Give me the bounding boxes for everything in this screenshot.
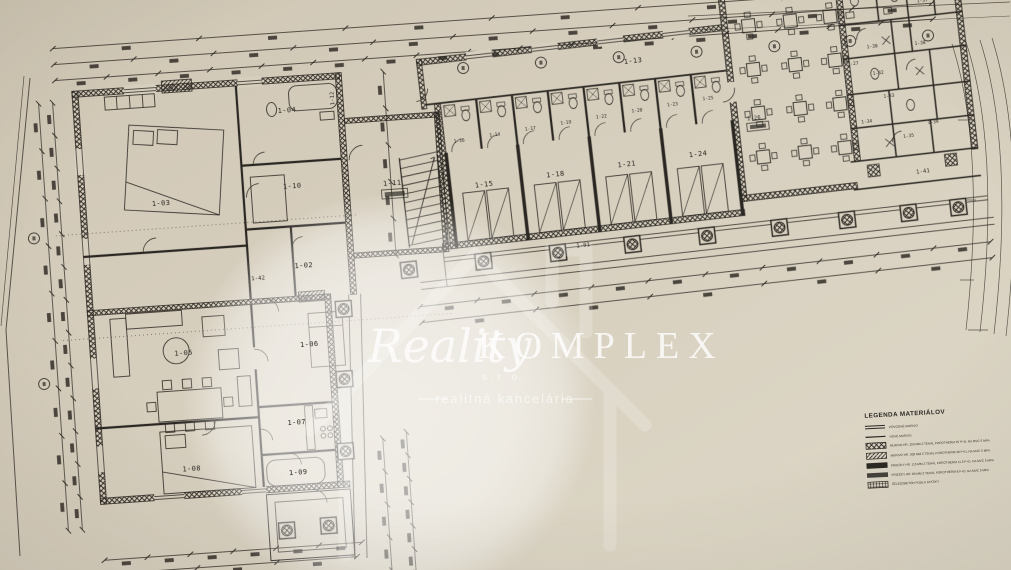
legend-symbol-grid [868,481,888,488]
watermark-suffix: s.r.o. [482,372,528,383]
room-label-1-03: 1-03 [152,199,171,208]
room-label-1-08: 1-08 [182,464,201,473]
legend-symbol-crosshatch [866,442,886,449]
room-label-1-09: 1-09 [289,468,308,477]
room-label-1-05: 1-05 [174,349,193,358]
room-label-1-12: 1-12 [329,91,336,105]
watermark-caps: KOMPLEX [478,325,725,367]
watermark-subtitle: realitná kancelária [435,392,574,406]
legend-symbol-diagonal [866,452,886,459]
room-label-1-02: 1-02 [294,261,313,270]
floorplan-canvas: Reality KOMPLEX s.r.o. realitná kancelár… [0,0,1011,570]
room-label-1-04: 1-04 [277,106,296,115]
room-label-1-11: 1-11 [383,179,402,188]
hatched-pier [161,79,192,93]
floorplan-photo: Reality KOMPLEX s.r.o. realitná kancelár… [0,0,1011,570]
room-label-1-42: 1-42 [251,275,265,282]
room-label-1-10: 1-10 [283,182,302,191]
room-label-1-06: 1-06 [300,340,319,349]
legend-symbol-solid-thin [867,473,887,478]
legend-symbol-solid [867,463,887,469]
room-label-1-07: 1-07 [287,418,306,427]
